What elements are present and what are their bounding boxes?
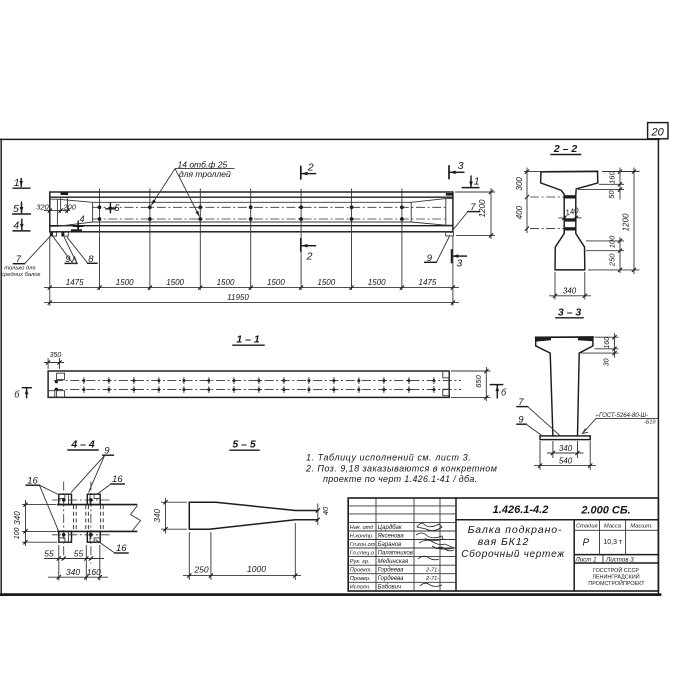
svg-text:Исполн.: Исполн. bbox=[350, 585, 371, 591]
svg-text:40: 40 bbox=[321, 506, 330, 515]
svg-text:100: 100 bbox=[14, 527, 21, 539]
svg-text:Р: Р bbox=[582, 537, 589, 548]
svg-text:340: 340 bbox=[13, 511, 22, 525]
svg-text:вая БК12: вая БК12 bbox=[478, 536, 530, 548]
svg-text:5 – 5: 5 – 5 bbox=[232, 439, 256, 451]
svg-text:средних балок: средних балок bbox=[1, 272, 40, 278]
svg-text:Мединская: Мединская bbox=[378, 559, 409, 565]
svg-text:проекте по черт 1.426.1-41: проекте по черт 1.426.1-41 / дба. bbox=[323, 474, 477, 484]
svg-text:400: 400 bbox=[515, 205, 524, 219]
svg-text:4 – 4: 4 – 4 bbox=[70, 439, 95, 451]
svg-text:Баранов: Баранов bbox=[378, 542, 402, 548]
svg-text:650: 650 bbox=[474, 374, 483, 387]
svg-text:Палатников: Палатников bbox=[378, 550, 413, 556]
svg-text:Сборочный чертеж: Сборочный чертеж bbox=[461, 548, 565, 560]
svg-text:для троллей: для троллей bbox=[179, 169, 231, 179]
svg-text:100: 100 bbox=[608, 235, 617, 248]
svg-text:Провер.: Провер. bbox=[350, 576, 371, 582]
svg-text:340: 340 bbox=[66, 567, 80, 577]
svg-text:1500: 1500 bbox=[317, 278, 335, 287]
svg-text:Гл.спец.о: Гл.спец.о bbox=[350, 550, 374, 556]
svg-text:2. Поз. 9,18 заказываются в ко: 2. Поз. 9,18 заказываются в конкретном bbox=[305, 463, 497, 473]
svg-text:Масшт.: Масшт. bbox=[630, 524, 652, 530]
svg-text:1500: 1500 bbox=[166, 278, 184, 287]
svg-text:1: 1 bbox=[14, 177, 20, 189]
svg-text:Лист 1: Лист 1 bbox=[575, 557, 597, 564]
svg-text:30: 30 bbox=[603, 358, 610, 366]
svg-text:1500: 1500 bbox=[368, 278, 386, 287]
svg-text:2.000 СБ.: 2.000 СБ. bbox=[580, 505, 630, 517]
svg-text:1000: 1000 bbox=[247, 564, 266, 574]
svg-text:160: 160 bbox=[604, 337, 611, 349]
svg-text:160: 160 bbox=[608, 171, 617, 184]
svg-text:1500: 1500 bbox=[116, 278, 134, 287]
svg-text:⌐ГОСТ-5264-80-Ш-: ⌐ГОСТ-5264-80-Ш- bbox=[596, 413, 649, 419]
svg-text:340: 340 bbox=[153, 508, 162, 522]
svg-text:3: 3 bbox=[456, 258, 462, 270]
svg-text:3: 3 bbox=[458, 160, 464, 172]
svg-text:200: 200 bbox=[62, 202, 76, 211]
svg-text:1475: 1475 bbox=[419, 278, 437, 287]
svg-text:55: 55 bbox=[44, 548, 54, 558]
svg-text:4: 4 bbox=[80, 214, 85, 224]
svg-text:Бабович: Бабович bbox=[378, 585, 402, 591]
svg-text:340: 340 bbox=[563, 287, 577, 296]
svg-text:1. Таблицу исполнений см. лис: 1. Таблицу исполнений см. лист 3. bbox=[306, 453, 471, 463]
svg-text:50: 50 bbox=[607, 190, 616, 199]
svg-text:ГОССТРОЙ СССР: ГОССТРОЙ СССР bbox=[593, 566, 639, 574]
svg-text:1: 1 bbox=[474, 175, 480, 187]
svg-text:-Б1д: -Б1д bbox=[644, 420, 656, 426]
svg-text:Балка подкрано-: Балка подкрано- bbox=[468, 524, 563, 536]
svg-text:Гордеева: Гордеева bbox=[378, 568, 405, 574]
svg-text:ЛЕНИНГРАДСКИЙ: ЛЕНИНГРАДСКИЙ bbox=[592, 572, 639, 580]
svg-text:5: 5 bbox=[13, 203, 19, 215]
svg-text:11950: 11950 bbox=[227, 293, 249, 302]
svg-text:1475: 1475 bbox=[66, 278, 84, 287]
svg-text:2-71-: 2-71- bbox=[425, 576, 439, 582]
svg-text:3 – 3: 3 – 3 bbox=[558, 306, 582, 318]
svg-text:Масса: Масса bbox=[604, 524, 622, 530]
svg-text:Проект.: Проект. bbox=[350, 568, 372, 574]
svg-text:300: 300 bbox=[515, 177, 524, 191]
svg-text:55: 55 bbox=[74, 548, 84, 558]
svg-text:1200: 1200 bbox=[478, 199, 487, 217]
svg-text:2 – 2: 2 – 2 bbox=[553, 143, 578, 155]
svg-text:Гл.кон.от: Гл.кон.от bbox=[350, 542, 376, 548]
svg-text:160: 160 bbox=[87, 567, 101, 577]
svg-text:250: 250 bbox=[193, 565, 208, 575]
svg-text:Н.контр.: Н.контр. bbox=[350, 533, 374, 539]
svg-text:250: 250 bbox=[608, 253, 617, 267]
svg-text:Яксенова: Яксенова bbox=[377, 533, 405, 539]
svg-text:1.426.1-4.2: 1.426.1-4.2 bbox=[493, 504, 549, 516]
svg-text:только для: только для bbox=[4, 266, 35, 272]
svg-text:340: 340 bbox=[559, 444, 573, 453]
svg-text:Рук. гр.: Рук. гр. bbox=[350, 559, 370, 565]
svg-text:20: 20 bbox=[650, 127, 664, 139]
svg-text:1500: 1500 bbox=[267, 278, 285, 287]
svg-text:Гордеева: Гордеева bbox=[378, 576, 405, 582]
svg-text:Нач. отд: Нач. отд bbox=[350, 525, 374, 531]
svg-text:2: 2 bbox=[307, 162, 314, 174]
svg-text:2-71-: 2-71- bbox=[425, 568, 439, 574]
svg-text:10,3 т: 10,3 т bbox=[603, 539, 623, 546]
svg-text:14 отб.ф 25: 14 отб.ф 25 bbox=[178, 159, 228, 169]
svg-text:1500: 1500 bbox=[217, 278, 235, 287]
svg-text:Листов 3: Листов 3 bbox=[605, 557, 634, 564]
svg-text:ПРОМСТРОЙПРОЕКТ: ПРОМСТРОЙПРОЕКТ bbox=[588, 579, 645, 587]
svg-text:540: 540 bbox=[559, 456, 573, 465]
svg-text:2: 2 bbox=[306, 251, 313, 263]
svg-text:1200: 1200 bbox=[622, 213, 631, 231]
svg-text:4: 4 bbox=[13, 220, 19, 232]
svg-text:Стадия: Стадия bbox=[576, 524, 598, 530]
svg-text:1 – 1: 1 – 1 bbox=[236, 334, 260, 346]
svg-text:Цардбак: Цардбак bbox=[378, 525, 403, 531]
